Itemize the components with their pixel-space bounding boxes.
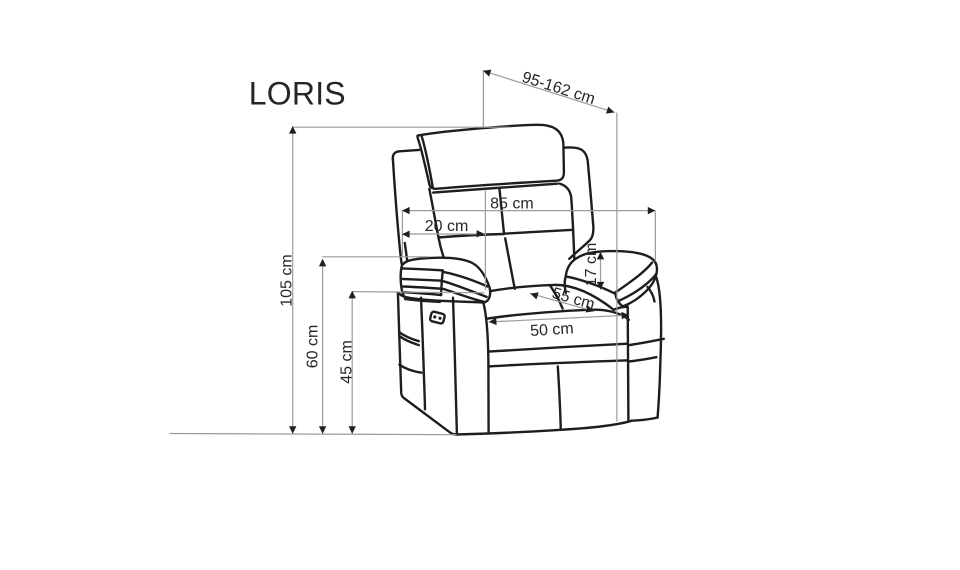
svg-text:105 cm: 105 cm [279, 254, 296, 306]
svg-text:LORIS: LORIS [249, 75, 346, 111]
svg-text:45 cm: 45 cm [339, 340, 356, 384]
svg-text:17 cm: 17 cm [583, 243, 600, 287]
svg-text:85 cm: 85 cm [490, 195, 534, 212]
svg-text:55 cm: 55 cm [550, 285, 597, 314]
svg-text:50 cm: 50 cm [530, 320, 575, 340]
svg-text:20 cm: 20 cm [425, 218, 469, 235]
svg-text:60 cm: 60 cm [305, 325, 322, 369]
svg-text:95-162 cm: 95-162 cm [520, 69, 597, 108]
